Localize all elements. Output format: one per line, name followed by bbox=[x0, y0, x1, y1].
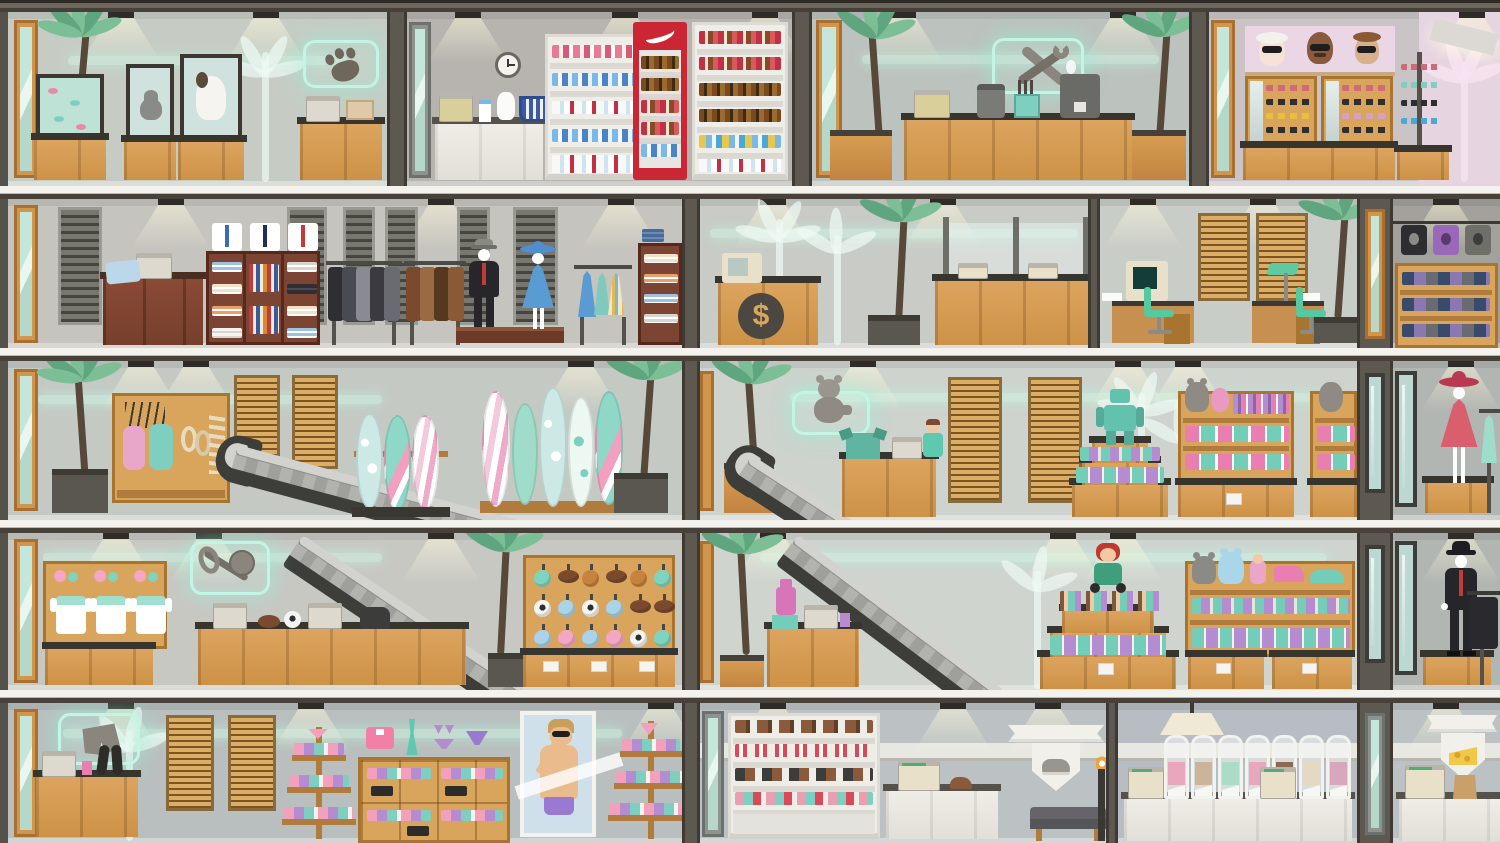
repair-machine bbox=[977, 84, 1005, 118]
pink-ball bbox=[558, 630, 575, 647]
ceiling-light bbox=[1050, 533, 1076, 539]
ceiling-light bbox=[1250, 199, 1276, 205]
cash-register bbox=[1128, 767, 1164, 799]
cash-register bbox=[914, 90, 950, 118]
jacket-rack bbox=[326, 261, 402, 345]
planter bbox=[52, 469, 108, 513]
teddy-bear-icon bbox=[812, 375, 852, 427]
floor-slab bbox=[0, 348, 1500, 361]
floor-slab bbox=[0, 690, 1500, 703]
milk-carton bbox=[479, 100, 491, 122]
plastic-bag bbox=[497, 92, 515, 120]
floor-3 bbox=[0, 361, 1500, 520]
palm-tree bbox=[860, 207, 940, 319]
wall-divider bbox=[1088, 199, 1100, 348]
wood-blinds bbox=[948, 377, 1002, 503]
teller-terminal bbox=[1028, 263, 1058, 279]
planter bbox=[830, 130, 892, 180]
shoe-counter[interactable] bbox=[886, 791, 998, 839]
wood-blinds bbox=[1198, 213, 1250, 301]
pen-cup bbox=[840, 613, 850, 627]
palm-tree bbox=[604, 365, 682, 477]
cash-register bbox=[308, 603, 342, 629]
folded-stack bbox=[642, 229, 664, 242]
wall-mirror bbox=[1365, 373, 1385, 493]
toy-shelf-base bbox=[1310, 485, 1357, 517]
ceiling-light bbox=[1035, 703, 1061, 709]
office-unit[interactable] bbox=[1100, 199, 1357, 348]
toy-shelf-base bbox=[1178, 485, 1294, 517]
menswear-counter[interactable] bbox=[103, 279, 203, 345]
wall-divider bbox=[682, 533, 700, 690]
toy-tractor-pink bbox=[1274, 566, 1304, 582]
eyewear-shop-unit[interactable] bbox=[1209, 12, 1500, 186]
cash-register bbox=[213, 603, 247, 629]
swim-display-purple-bikini bbox=[432, 725, 456, 749]
soccer-ball bbox=[630, 630, 647, 647]
swimwear-shop-unit[interactable] bbox=[8, 703, 682, 843]
ceiling-light bbox=[1433, 199, 1459, 205]
ceiling-light bbox=[648, 703, 674, 709]
cash-register bbox=[804, 605, 838, 629]
unit-door[interactable] bbox=[1365, 209, 1385, 339]
bulk-candy-unit[interactable] bbox=[1118, 703, 1357, 843]
unit-door[interactable] bbox=[1365, 713, 1385, 835]
shop-door[interactable] bbox=[14, 539, 38, 683]
ceiling-light bbox=[196, 533, 222, 539]
large-doll bbox=[1086, 543, 1130, 595]
pet-crate bbox=[346, 100, 374, 120]
ceiling-light bbox=[1448, 361, 1474, 367]
wall-divider bbox=[1189, 12, 1209, 186]
jersey-display-wall bbox=[43, 561, 167, 649]
cash-register bbox=[42, 751, 76, 777]
stuffed-cat-gray bbox=[1192, 556, 1216, 584]
tshirt-gray bbox=[1465, 225, 1491, 255]
doll-display-tier bbox=[1062, 611, 1154, 633]
store-shelf bbox=[545, 34, 645, 180]
teal-ball bbox=[654, 630, 671, 647]
bulk-candy-bin bbox=[1164, 735, 1189, 799]
ceiling-light bbox=[1459, 12, 1485, 18]
planter bbox=[720, 655, 764, 687]
ceiling-light bbox=[428, 533, 454, 539]
ceiling-light bbox=[612, 12, 638, 18]
shop-door[interactable] bbox=[14, 369, 38, 511]
paper-bag bbox=[1453, 775, 1477, 799]
toy-robot bbox=[1096, 389, 1144, 445]
paw-neon-sign bbox=[303, 40, 379, 88]
swim-display-pink-shorts bbox=[366, 727, 394, 749]
toy-checkout-counter[interactable] bbox=[767, 629, 859, 687]
roof-band bbox=[0, 0, 1500, 12]
blue-ball bbox=[558, 600, 575, 617]
convenience-store-unit[interactable] bbox=[407, 12, 792, 186]
ball-wall-base bbox=[523, 655, 675, 687]
planter bbox=[868, 315, 920, 345]
case-cabinet bbox=[124, 142, 176, 180]
pet-checkout-counter[interactable] bbox=[300, 124, 382, 180]
shop-door[interactable] bbox=[409, 22, 431, 178]
bikini-top bbox=[308, 729, 328, 739]
blue-ball bbox=[534, 630, 551, 647]
ceiling-light bbox=[940, 703, 966, 709]
ceiling-light bbox=[1130, 199, 1156, 205]
doll-display-base bbox=[1040, 657, 1176, 689]
soccer-ball bbox=[284, 611, 301, 628]
mannequin-platform bbox=[456, 327, 564, 343]
coffee-machine bbox=[1060, 74, 1100, 118]
tshirt-purple bbox=[1433, 225, 1459, 255]
planter bbox=[1314, 317, 1357, 343]
golf-bag-pink bbox=[123, 426, 145, 470]
shop-door[interactable] bbox=[1211, 20, 1235, 178]
pendant-lamp bbox=[1160, 703, 1224, 737]
toy-shelf-partial bbox=[1310, 391, 1357, 483]
sunglasses-cabinet bbox=[1245, 76, 1317, 148]
male-mannequin bbox=[466, 239, 502, 327]
cooler-logo bbox=[644, 25, 676, 46]
teddy-bear-pink bbox=[1211, 388, 1229, 412]
cash-register bbox=[439, 94, 473, 122]
sneaker-icon bbox=[1042, 759, 1070, 772]
tshirt-shop-unit[interactable] bbox=[1393, 199, 1500, 348]
dress-rack bbox=[1479, 409, 1500, 513]
sporting-goods-unit[interactable] bbox=[8, 533, 682, 690]
dress-rack bbox=[574, 265, 632, 345]
rack-base bbox=[1397, 152, 1449, 180]
standing-mirror bbox=[1395, 371, 1417, 507]
brown-shoe bbox=[950, 777, 972, 789]
surfboard-rack bbox=[352, 411, 452, 517]
bulk-candy-bin bbox=[1218, 735, 1243, 799]
floor-1 bbox=[0, 12, 1500, 186]
shop-door[interactable] bbox=[702, 711, 724, 837]
soccer-ball bbox=[534, 600, 551, 617]
cabinet-base bbox=[1243, 148, 1395, 180]
planter bbox=[614, 473, 668, 513]
cat-display-case bbox=[126, 64, 174, 142]
football bbox=[606, 570, 627, 583]
model-face bbox=[1259, 36, 1285, 66]
jersey-wall-base bbox=[45, 649, 153, 685]
ceiling-light bbox=[850, 361, 876, 367]
waiting-bench bbox=[1030, 807, 1106, 841]
sports-counter[interactable] bbox=[198, 629, 466, 685]
bulk-candy-bin bbox=[1191, 735, 1216, 799]
toy-store-lower-unit[interactable] bbox=[700, 533, 1357, 690]
golf-bag-teal bbox=[149, 424, 173, 470]
folded-jeans bbox=[105, 259, 141, 284]
repair-counter[interactable] bbox=[904, 120, 1132, 180]
shoe-crest-sign bbox=[1008, 719, 1104, 799]
toy-checkout-counter[interactable] bbox=[842, 459, 936, 517]
ceiling-light bbox=[158, 199, 184, 205]
team-jersey bbox=[56, 596, 86, 634]
clothes-cabinet bbox=[638, 243, 682, 345]
ceiling-light bbox=[183, 361, 209, 367]
wall-divider bbox=[682, 703, 700, 843]
toy-shelf bbox=[1185, 561, 1355, 657]
sporting-goods-surf-unit[interactable] bbox=[8, 361, 682, 520]
ceiling-light bbox=[1115, 361, 1141, 367]
wall-divider bbox=[682, 199, 700, 348]
sandal bbox=[111, 745, 123, 776]
wall-divider bbox=[1357, 703, 1393, 843]
cash-register bbox=[1260, 767, 1296, 799]
display-shirt-red-tie bbox=[288, 223, 318, 251]
shirt-cabinet bbox=[206, 251, 320, 345]
wall-divider bbox=[1357, 533, 1393, 690]
dollar-emblem: $ bbox=[738, 293, 784, 339]
racket-icon bbox=[195, 543, 223, 576]
wood-blinds bbox=[228, 715, 276, 811]
teddy-bear-gray bbox=[1319, 382, 1343, 412]
pink-cup bbox=[82, 761, 92, 775]
menswear-store-unit[interactable] bbox=[8, 199, 682, 348]
papers bbox=[1102, 293, 1122, 301]
cash-register bbox=[898, 761, 940, 791]
model-face bbox=[1307, 32, 1333, 64]
basketball bbox=[582, 570, 599, 587]
pet-shop-unit[interactable] bbox=[8, 12, 387, 186]
sports-neon-sign bbox=[190, 541, 270, 595]
hanging-wire bbox=[1393, 221, 1500, 224]
bulk-candy-bin bbox=[1326, 735, 1351, 799]
teddy-bear-gray bbox=[1185, 382, 1209, 412]
sunglasses-banner bbox=[1245, 26, 1395, 76]
store-shelf bbox=[692, 22, 788, 180]
wall-mirror bbox=[1365, 545, 1385, 663]
soccer-ball bbox=[582, 600, 599, 617]
paw-icon bbox=[324, 46, 366, 85]
tshirt-shelves bbox=[1395, 263, 1498, 348]
mall-cross-section: $ bbox=[0, 0, 1500, 843]
torch-lamp bbox=[1096, 751, 1106, 841]
pink-ball bbox=[606, 630, 623, 647]
toy-car-teal bbox=[1310, 570, 1344, 583]
football bbox=[630, 600, 651, 613]
display-shirt-navy-tie bbox=[250, 223, 280, 251]
pink-bikini-hanger bbox=[640, 723, 658, 735]
wall-divider bbox=[387, 12, 407, 186]
floor-2: $ bbox=[0, 199, 1500, 348]
sunglasses-cabinet bbox=[1321, 76, 1393, 148]
teller-post bbox=[943, 217, 949, 281]
checkout-counter[interactable] bbox=[435, 124, 543, 180]
boutique-mannequin-red-dress bbox=[1435, 369, 1483, 483]
swim-checkout-counter[interactable] bbox=[36, 777, 138, 837]
tool-handles bbox=[1018, 80, 1036, 94]
ceiling-light bbox=[760, 703, 786, 709]
window-blinds bbox=[58, 207, 102, 325]
ceiling-light bbox=[108, 703, 134, 709]
floor-5 bbox=[0, 703, 1500, 843]
ceiling-light bbox=[608, 199, 634, 205]
open-box bbox=[846, 433, 880, 459]
toy-store-unit[interactable] bbox=[700, 361, 1357, 520]
toy-shelf-base bbox=[1272, 657, 1352, 689]
desktop-computer bbox=[722, 253, 762, 283]
cash-register bbox=[306, 96, 340, 122]
wall-divider bbox=[682, 361, 700, 520]
sports-bag bbox=[360, 607, 390, 629]
floor-slab bbox=[0, 520, 1500, 533]
planter bbox=[1128, 130, 1186, 180]
wall-divider bbox=[792, 12, 812, 186]
swim-cubby-shelf bbox=[358, 757, 510, 843]
office-chair bbox=[1144, 287, 1178, 335]
teal-ball bbox=[534, 570, 551, 587]
team-jersey bbox=[136, 596, 166, 634]
display-shirt-blue-tie bbox=[212, 223, 242, 251]
aquarium-cabinet bbox=[34, 140, 106, 180]
basketball bbox=[630, 570, 647, 587]
robot-display-base bbox=[1072, 485, 1168, 517]
palm-tree bbox=[1300, 205, 1357, 319]
teal-ball bbox=[654, 570, 671, 587]
tshirt-black bbox=[1401, 225, 1427, 255]
drink-cooler bbox=[633, 22, 687, 180]
palm-tree bbox=[832, 24, 912, 134]
poster-man bbox=[524, 715, 592, 833]
candy-counter[interactable] bbox=[1124, 799, 1352, 841]
deli-counter[interactable] bbox=[1399, 799, 1500, 841]
display-box-teal bbox=[772, 615, 798, 629]
small-doll bbox=[1250, 560, 1266, 584]
shoe-store-unit[interactable] bbox=[700, 703, 1106, 843]
wall-divider bbox=[1106, 703, 1118, 843]
ceiling-light bbox=[298, 703, 324, 709]
towel-tier-display bbox=[608, 721, 682, 843]
deli-shop-unit[interactable] bbox=[1393, 703, 1500, 843]
football bbox=[558, 570, 579, 583]
wall-divider bbox=[1357, 361, 1393, 520]
swim-display-purple-bottom bbox=[466, 731, 488, 745]
football bbox=[258, 615, 280, 628]
ceiling-light bbox=[1110, 533, 1136, 539]
ceiling-light bbox=[455, 12, 481, 18]
wall-divider bbox=[1357, 199, 1393, 348]
shop-door[interactable] bbox=[14, 205, 38, 343]
golf-rack-wall bbox=[112, 393, 230, 503]
cash-register bbox=[136, 253, 172, 279]
shoe-shelf bbox=[728, 713, 880, 839]
dog-display-case bbox=[180, 54, 242, 142]
teller-terminal bbox=[958, 263, 988, 279]
ceiling-light bbox=[253, 12, 279, 18]
wood-blinds bbox=[166, 715, 214, 811]
ceiling-light bbox=[1175, 361, 1201, 367]
ball-display-wall bbox=[523, 555, 675, 655]
womens-boutique-unit[interactable] bbox=[1393, 361, 1500, 520]
swim-poster bbox=[520, 711, 596, 837]
ceiling-light bbox=[428, 199, 454, 205]
ceiling-light bbox=[752, 12, 778, 18]
blue-ball bbox=[582, 630, 599, 647]
blue-ball bbox=[606, 600, 623, 617]
shop-clerk bbox=[922, 421, 944, 459]
case-cabinet bbox=[178, 142, 244, 180]
toy-shelf-base bbox=[1188, 657, 1264, 689]
bulk-candy-bin bbox=[1299, 735, 1324, 799]
model-face bbox=[1355, 36, 1379, 64]
female-mannequin bbox=[516, 241, 560, 327]
palm-tree bbox=[38, 367, 118, 475]
ceiling-light bbox=[103, 533, 129, 539]
swim-tier-shelf bbox=[282, 727, 356, 843]
team-jersey bbox=[96, 596, 126, 634]
cash-register bbox=[892, 437, 922, 459]
repair-shop-unit[interactable] bbox=[812, 12, 1189, 186]
ceiling-light bbox=[1448, 533, 1474, 539]
floor-slab bbox=[0, 186, 1500, 199]
cash-register bbox=[1405, 765, 1445, 799]
wood-blinds bbox=[292, 375, 338, 469]
football bbox=[654, 600, 675, 613]
menswear-boutique-unit[interactable] bbox=[1393, 533, 1500, 690]
floor-4 bbox=[0, 533, 1500, 690]
standing-mirror bbox=[1395, 541, 1417, 675]
aquarium bbox=[36, 74, 104, 140]
teller-counter[interactable] bbox=[935, 281, 1088, 345]
tool-cup bbox=[1014, 94, 1040, 118]
toy-shelf bbox=[1178, 391, 1294, 483]
stuffed-cat-blue bbox=[1218, 552, 1244, 584]
bank-unit[interactable]: $ bbox=[700, 199, 1088, 348]
ceiling-light bbox=[128, 361, 154, 367]
ceiling-light bbox=[568, 361, 594, 367]
teller-post bbox=[1013, 217, 1019, 281]
wall-clock bbox=[495, 52, 521, 78]
basketball-icon bbox=[229, 550, 255, 576]
dark-clothes-rack bbox=[1467, 591, 1500, 685]
toy-robot-pink bbox=[776, 587, 796, 615]
